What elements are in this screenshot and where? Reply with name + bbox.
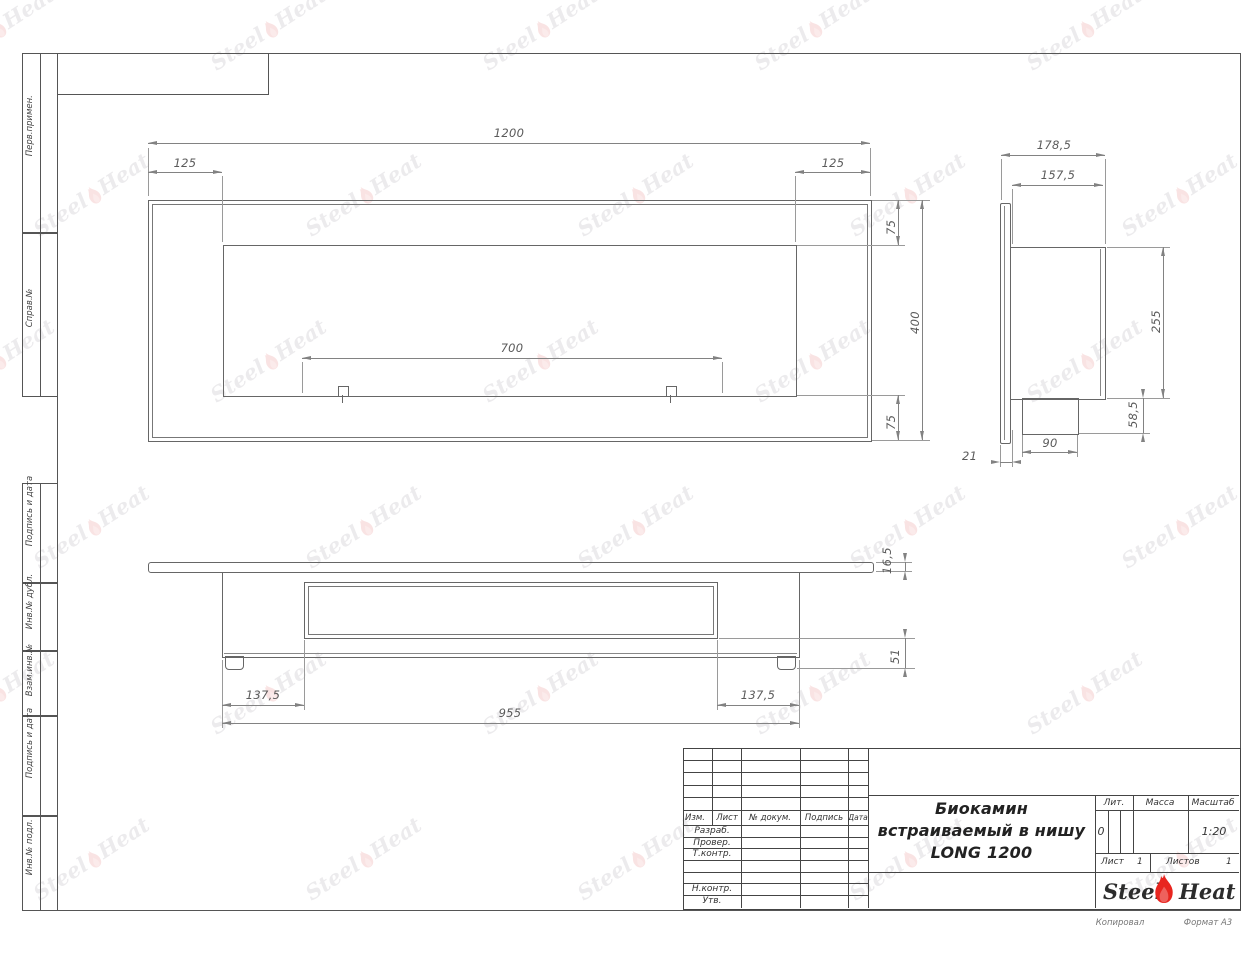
dim-side-box-width: [1022, 452, 1077, 453]
burner-clip-left-tick: [342, 395, 343, 403]
dim-bottom-base-height: [905, 638, 906, 668]
extension-line: [797, 668, 915, 669]
extension-line: [222, 660, 223, 728]
dim-side-depth-body: [1012, 185, 1103, 186]
copied-note: Копировал: [1096, 919, 1145, 928]
drawing-line: [805, 18, 825, 40]
sheet-label: Лист: [1101, 858, 1124, 867]
margin-block-divider: [40, 651, 41, 716]
title-block-line: [683, 785, 868, 786]
extension-line: [797, 245, 905, 246]
drawing-title-line2: встраиваемый в нишу: [868, 823, 1095, 839]
title-block-line: [1095, 810, 1239, 811]
bottom-view-opening-inner: [308, 586, 714, 635]
watermark-flame-icon: [0, 17, 10, 42]
lit-label: Лит.: [1104, 799, 1125, 808]
dim-label: 255: [1151, 310, 1163, 333]
dim-side-flange-offset: [1000, 462, 1012, 463]
title-block-line: [1095, 853, 1239, 854]
drawing-line: [1077, 18, 1097, 40]
dim-label: 75: [886, 220, 898, 235]
title-block-line: [683, 772, 868, 773]
dim-front-top-border: [898, 200, 899, 245]
scale-label: Масштаб: [1192, 799, 1235, 808]
title-block-line: [1188, 795, 1189, 853]
dim-label: 75: [886, 415, 898, 430]
dim-label: 90: [1042, 438, 1057, 450]
title-block-line: [868, 795, 1239, 796]
extension-line: [795, 176, 796, 242]
dim-label: 137,5: [741, 690, 775, 702]
margin-label: Взам.инв.№: [26, 680, 35, 696]
margin-block-divider: [40, 54, 41, 233]
dim-side-body-height: [1163, 247, 1164, 398]
title-block-line: [683, 760, 868, 761]
extension-line: [870, 148, 871, 196]
burner-clip-left: [338, 386, 349, 396]
margin-block-divider: [40, 816, 41, 910]
dim-front-height: [922, 200, 923, 440]
extension-line: [717, 640, 718, 710]
margin-label: Инв.№ дубл.: [26, 613, 35, 629]
dim-label: 157,5: [1041, 170, 1075, 182]
margin-block-podpis-data-2: Подпись и дата: [22, 715, 58, 817]
dim-front-right-offset: [795, 172, 870, 173]
margin-label: Перв.примен.: [26, 140, 35, 156]
extension-line: [302, 362, 303, 393]
margin-block-sprav-no: Справ.№: [22, 232, 58, 397]
sheets-label: Листов: [1166, 858, 1200, 867]
drawing-line: [0, 350, 8, 372]
dim-bottom-plate-thickness: [905, 562, 906, 571]
scale-value: 1:20: [1202, 826, 1227, 837]
side-view-bottom-box: [1022, 398, 1079, 435]
row-label-prover: Провер.: [693, 839, 730, 848]
extension-line: [799, 660, 800, 728]
margin-block-divider: [40, 583, 41, 651]
title-block-line: [683, 797, 868, 798]
margin-block-perv-primen: Перв.примен.: [22, 53, 58, 234]
title-block-line: [683, 872, 868, 873]
extension-line: [1001, 159, 1002, 200]
front-view-opening: [223, 245, 797, 397]
extension-line: [1079, 433, 1150, 434]
drawing-line: [1155, 874, 1172, 903]
row-label-utv: Утв.: [703, 897, 722, 906]
title-block-line: [868, 872, 1239, 873]
dim-label: 178,5: [1037, 140, 1071, 152]
side-view-body-inner-line: [1100, 249, 1101, 396]
dim-label: 16,5: [882, 547, 894, 574]
lit-value: 0: [1098, 826, 1105, 837]
extension-line: [722, 362, 723, 393]
col-header-doc: № докум.: [749, 814, 791, 823]
extension-line: [1105, 159, 1106, 244]
col-header-list: Лист: [716, 814, 738, 823]
title-block-line: [1133, 795, 1134, 853]
dim-bottom-left-offset: [222, 705, 304, 706]
title-block-line: [683, 810, 868, 811]
dim-bottom-body-width: [222, 723, 799, 724]
watermark-flame-icon: [0, 681, 10, 706]
margin-block-vzam-inv: Взам.инв.№: [22, 650, 58, 717]
top-left-stamp-cell: [57, 53, 269, 95]
row-label-tkontr: Т.контр.: [692, 850, 731, 859]
drawing-line: [261, 18, 281, 40]
margin-block-divider: [40, 484, 41, 583]
col-header-podpis: Подпись: [805, 814, 843, 823]
side-view-body: [1010, 247, 1106, 400]
title-block-line: [1120, 810, 1121, 853]
col-header-data: Дата: [848, 814, 867, 822]
logo-heat-text: Heat: [1179, 881, 1236, 902]
extension-line: [1107, 398, 1170, 399]
dim-bottom-right-offset: [717, 705, 799, 706]
watermark-flame-icon: [0, 349, 10, 374]
sheets-value: 1: [1226, 858, 1232, 867]
margin-block-divider: [40, 233, 41, 396]
margin-block-divider: [40, 716, 41, 816]
margin-label: Подпись и дата: [26, 530, 35, 546]
drawing-title-line3: LONG 1200: [868, 845, 1095, 861]
drawing-line: [0, 18, 8, 40]
dim-side-depth-total: [1001, 155, 1105, 156]
dim-label: 58,5: [1128, 401, 1140, 428]
format-note: Формат А3: [1184, 919, 1232, 928]
title-block-line: [1095, 795, 1096, 908]
drawing-title-line1: Биокамин: [868, 801, 1095, 817]
margin-label: Инв.№ подл.: [26, 859, 35, 875]
mass-label: Масса: [1146, 799, 1175, 808]
side-view-flange-inner-line: [1004, 206, 1005, 440]
dim-label: 955: [499, 708, 522, 720]
extension-line: [222, 176, 223, 242]
margin-label: Справ.№: [26, 311, 35, 327]
row-label-nkontr: Н.контр.: [692, 885, 732, 894]
extension-line: [1012, 189, 1013, 244]
col-header-izm: Изм.: [685, 814, 705, 823]
dim-label: 125: [174, 158, 197, 170]
dim-side-box-height: [1143, 398, 1144, 433]
bottom-view-base-inner-line: [224, 653, 797, 654]
bottom-view-foot-left: [225, 656, 244, 670]
dim-front-left-offset: [148, 172, 222, 173]
dim-label: 51: [890, 649, 902, 664]
margin-block-inv-dubl: Инв.№ дубл.: [22, 582, 58, 652]
extension-line: [304, 640, 305, 710]
sheet-value: 1: [1137, 858, 1143, 867]
title-block-line: [683, 860, 868, 861]
title-block-line: [1108, 810, 1109, 853]
dim-front-bottom-border: [898, 395, 899, 440]
margin-block-podpis-data-1: Подпись и дата: [22, 483, 58, 584]
watermark-flame-icon: [1075, 17, 1098, 42]
dim-front-width: [148, 143, 870, 144]
dim-label: 21: [962, 451, 977, 463]
dim-label: 125: [822, 158, 845, 170]
extension-line: [719, 638, 915, 639]
drawing-sheet: SteelHeatSteelHeatSteelHeatSteelHeatStee…: [0, 0, 1255, 970]
watermark-flame-icon: [531, 17, 554, 42]
margin-block-inv-podl: Инв.№ подл.: [22, 815, 58, 911]
flame-icon: [1152, 873, 1176, 904]
row-label-razrab: Разраб.: [694, 827, 729, 836]
dim-label: 700: [501, 343, 524, 355]
extension-line: [1077, 435, 1078, 457]
dim-label: 1200: [494, 128, 524, 140]
watermark-flame-icon: [803, 17, 826, 42]
bottom-view-foot-right: [777, 656, 796, 670]
margin-label: Подпись и дата: [26, 762, 35, 778]
drawing-line: [0, 682, 8, 704]
dim-label: 137,5: [246, 690, 280, 702]
burner-clip-right: [666, 386, 677, 396]
extension-line: [1000, 445, 1001, 467]
title-block-line: [1150, 853, 1151, 872]
extension-line: [872, 440, 930, 441]
dim-front-burner-length: [302, 358, 722, 359]
drawing-line: [533, 18, 553, 40]
dim-label: 400: [910, 311, 922, 334]
burner-clip-right-tick: [670, 395, 671, 403]
watermark-flame-icon: [259, 17, 282, 42]
extension-line: [797, 395, 905, 396]
